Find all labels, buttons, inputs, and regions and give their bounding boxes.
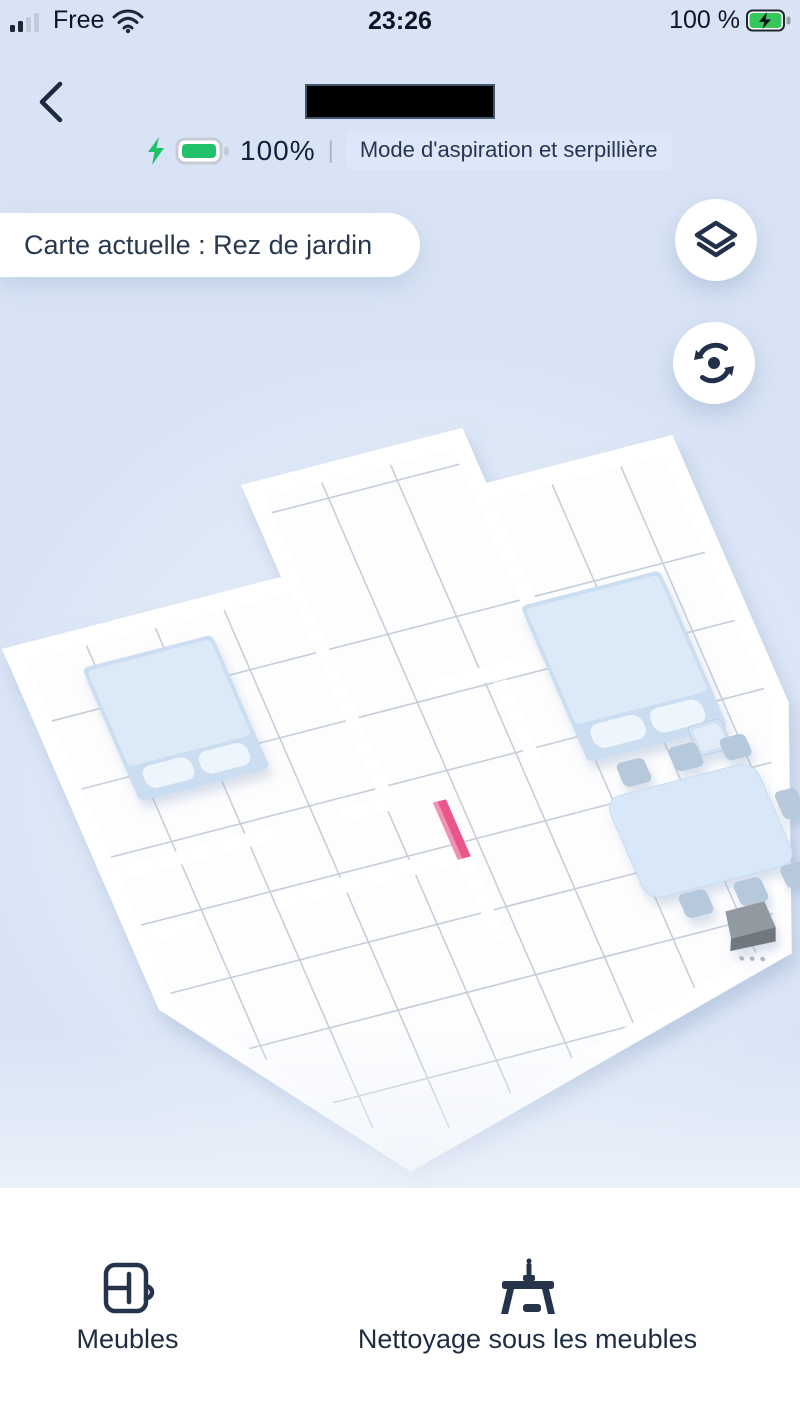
clean-under-furniture-icon [498, 1258, 558, 1316]
charging-bolt-icon [146, 136, 166, 166]
nav-label-meubles: Meubles [76, 1324, 178, 1355]
layers-button[interactable] [675, 199, 757, 281]
robot-status-row: 100% | Mode d'aspiration et serpillière [146, 129, 672, 173]
back-chevron-icon[interactable] [30, 78, 76, 126]
robot-battery-label: 100% [240, 135, 316, 167]
header-divider: | [328, 137, 334, 165]
rotate-reset-button[interactable] [673, 322, 755, 404]
rotate-reset-icon [689, 338, 739, 388]
battery-full-charging-icon [175, 136, 231, 166]
cleaning-mode-badge[interactable]: Mode d'aspiration et serpillière [346, 132, 672, 170]
status-bar: Free 23:26 100 % [0, 0, 800, 44]
nav-item-nettoyage[interactable]: Nettoyage sous les meubles [255, 1188, 800, 1422]
current-map-pill[interactable]: Carte actuelle : Rez de jardin [0, 213, 420, 277]
app-screen: Free 23:26 100 % [0, 0, 800, 1422]
furniture-icon [99, 1260, 157, 1316]
map-bottom-fade [0, 1030, 800, 1190]
bottom-nav: Meubles Nettoyage sous les meubles [0, 1188, 800, 1422]
nav-item-meubles[interactable]: Meubles [0, 1188, 255, 1422]
nav-label-nettoyage: Nettoyage sous les meubles [358, 1324, 697, 1355]
redacted-title [307, 86, 493, 117]
battery-percent-label: 100 % [669, 6, 740, 35]
layers-icon [691, 217, 741, 263]
battery-charging-icon [746, 9, 792, 32]
map-3d-view[interactable] [0, 0, 800, 1190]
